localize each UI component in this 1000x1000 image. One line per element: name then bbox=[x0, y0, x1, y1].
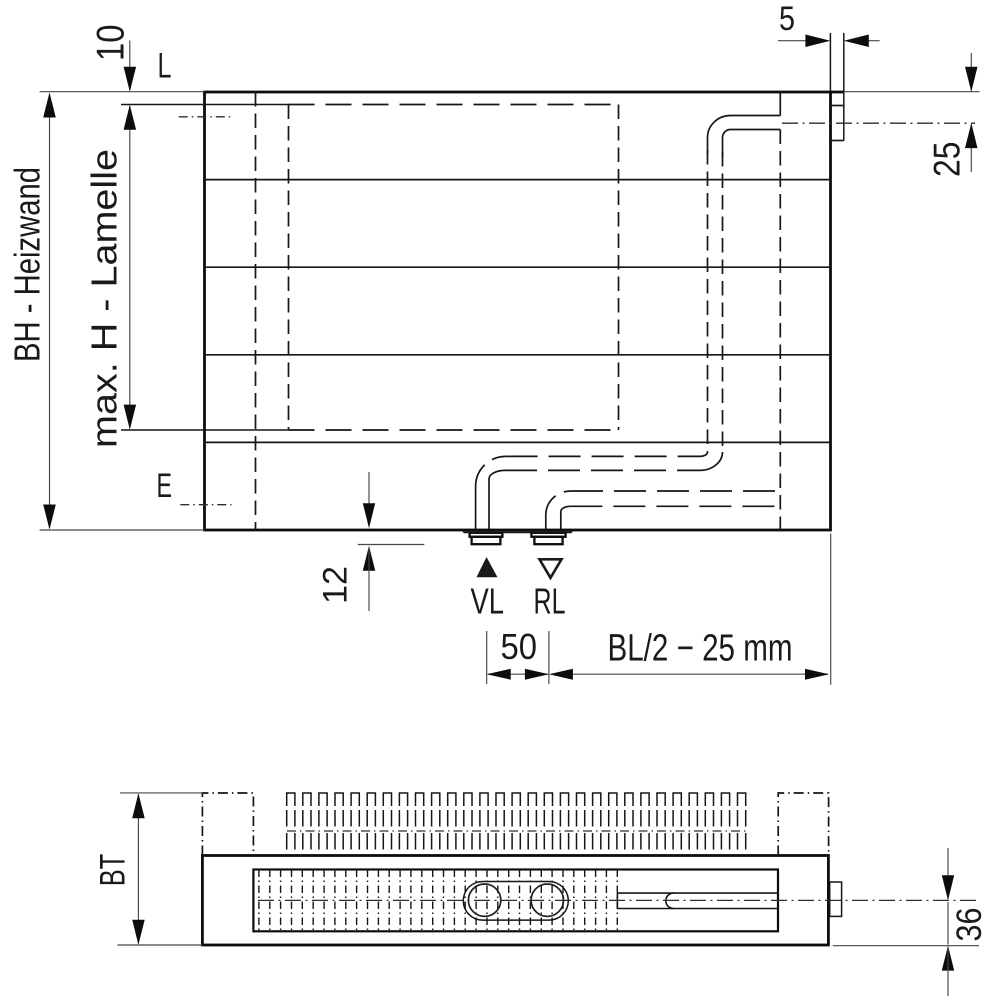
svg-text:50: 50 bbox=[501, 626, 538, 667]
svg-text:12: 12 bbox=[317, 566, 355, 604]
svg-text:25: 25 bbox=[926, 142, 968, 178]
svg-text:L: L bbox=[158, 46, 172, 85]
svg-text:E: E bbox=[157, 467, 173, 505]
svg-text:max. H - Lamelle: max. H - Lamelle bbox=[84, 149, 125, 448]
svg-text:VL: VL bbox=[471, 581, 505, 622]
svg-text:5: 5 bbox=[779, 0, 795, 38]
svg-text:BT: BT bbox=[93, 854, 132, 887]
svg-text:BH - Heizwand: BH - Heizwand bbox=[7, 167, 48, 362]
svg-text:RL: RL bbox=[534, 581, 566, 622]
svg-text:BL/2 − 25 mm: BL/2 − 25 mm bbox=[608, 628, 793, 670]
svg-text:36: 36 bbox=[950, 908, 989, 942]
svg-text:10: 10 bbox=[90, 25, 133, 62]
